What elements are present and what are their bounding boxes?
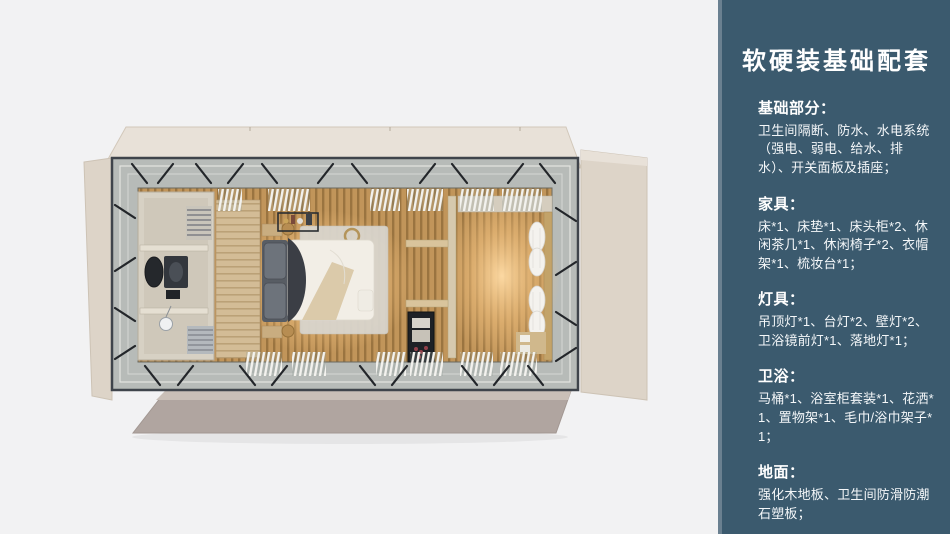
rattan-pouf	[282, 223, 294, 235]
room-interior	[138, 188, 560, 376]
floorplan-render	[0, 0, 718, 534]
wall-shelf	[406, 300, 448, 307]
section-body: 床*1、床垫*1、床头柜*2、休闲茶几*1、休闲椅子*2、衣帽架*1、梳妆台*1…	[758, 218, 934, 274]
section-heading: 卫浴：	[758, 366, 934, 387]
info-panel: 软硬装基础配套 基础部分： 卫生间隔断、防水、水电系统（强电、弱电、给水、排水）…	[718, 0, 950, 534]
cushion	[358, 290, 373, 311]
right-wall-panel	[581, 150, 647, 400]
pillow	[264, 283, 286, 319]
sink-basin	[169, 262, 183, 282]
section-lighting: 灯具： 吊顶灯*1、台灯*2、壁灯*2、卫浴镜前灯*1、落地灯*1；	[758, 289, 934, 350]
nightstand	[262, 326, 282, 338]
section-body: 马桶*1、浴室柜套装*1、花洒*1、置物架*1、毛巾/浴巾架子*1；	[758, 390, 934, 446]
section-body: 强化木地板、卫生间防滑防潮石塑板；	[758, 486, 934, 523]
section-furniture: 家具： 床*1、床垫*1、床头柜*2、休闲茶几*1、休闲椅子*2、衣帽架*1、梳…	[758, 194, 934, 274]
section-basics: 基础部分： 卫生间隔断、防水、水电系统（强电、弱电、给水、排水）、开关面板及插座…	[758, 98, 934, 178]
section-heading: 灯具：	[758, 289, 934, 310]
nightstand	[262, 224, 282, 236]
section-body: 吊顶灯*1、台灯*2、壁灯*2、卫浴镜前灯*1、落地灯*1；	[758, 313, 934, 350]
bathroom-shelf	[140, 308, 208, 314]
floorplan-svg	[0, 0, 718, 534]
vanity-mirror	[145, 257, 163, 287]
panel-content: 软硬装基础配套 基础部分： 卫生间隔断、防水、水电系统（强电、弱电、给水、排水）…	[718, 0, 950, 523]
section-heading: 地面：	[758, 462, 934, 483]
section-body: 卫生间隔断、防水、水电系统（强电、弱电、给水、排水）、开关面板及插座；	[758, 122, 934, 178]
section-bathroom: 卫浴： 马桶*1、浴室柜套装*1、花洒*1、置物架*1、毛巾/浴巾架子*1；	[758, 366, 934, 446]
divider-wall	[448, 196, 456, 358]
rattan-pouf	[282, 325, 294, 337]
wall-shelf	[406, 240, 448, 247]
bed-area	[262, 213, 388, 338]
section-heading: 基础部分：	[758, 98, 934, 119]
slide: 软硬装基础配套 基础部分： 卫生间隔断、防水、水电系统（强电、弱电、给水、排水）…	[0, 0, 950, 534]
pillow	[264, 243, 286, 279]
bathroom-shelf	[140, 245, 208, 251]
bathroom-area	[138, 192, 214, 360]
section-flooring: 地面： 强化木地板、卫生间防滑防潮石塑板；	[758, 462, 934, 523]
shower-head	[160, 318, 173, 331]
section-heading: 家具：	[758, 194, 934, 215]
wood-platform	[216, 200, 260, 358]
left-wall-panel	[84, 158, 112, 400]
panel-title: 软硬装基础配套	[742, 48, 934, 77]
